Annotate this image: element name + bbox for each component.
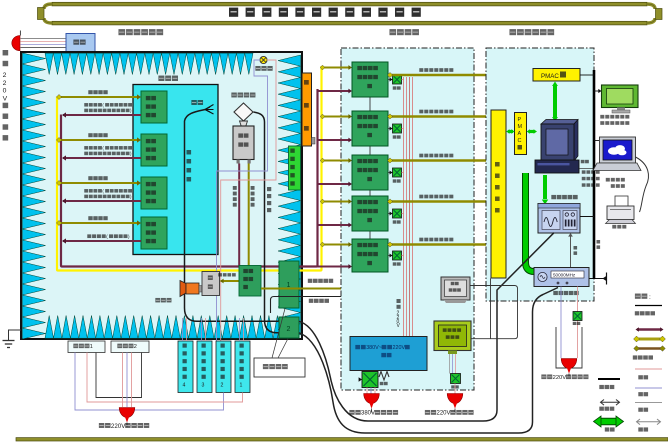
svg-text:P: P [518,117,522,123]
svg-text:220V: 220V [393,345,406,351]
svg-text:V: V [3,95,8,102]
svg-text:1: 1 [90,344,93,350]
svg-text:2: 2 [3,72,7,79]
svg-text:0: 0 [3,88,7,95]
svg-text:380V: 380V [361,411,375,417]
svg-text:220V: 220V [437,411,451,417]
svg-text:C: C [518,138,522,144]
svg-text:PMAC: PMAC [541,73,559,80]
svg-text:1: 1 [240,383,243,389]
svg-text:3: 3 [202,383,205,389]
svg-text:50000MHz: 50000MHz [553,273,576,278]
svg-text:2: 2 [287,326,291,333]
svg-text:M: M [518,124,523,130]
svg-text::: : [649,294,651,301]
svg-text:220V: 220V [111,423,126,430]
svg-text:220V: 220V [553,375,567,381]
svg-text:4: 4 [183,383,186,389]
svg-text:2: 2 [134,344,137,350]
svg-text:2: 2 [221,383,224,389]
svg-text:380V~: 380V~ [366,345,382,351]
svg-text:2: 2 [3,80,7,87]
svg-text:A: A [518,131,522,137]
